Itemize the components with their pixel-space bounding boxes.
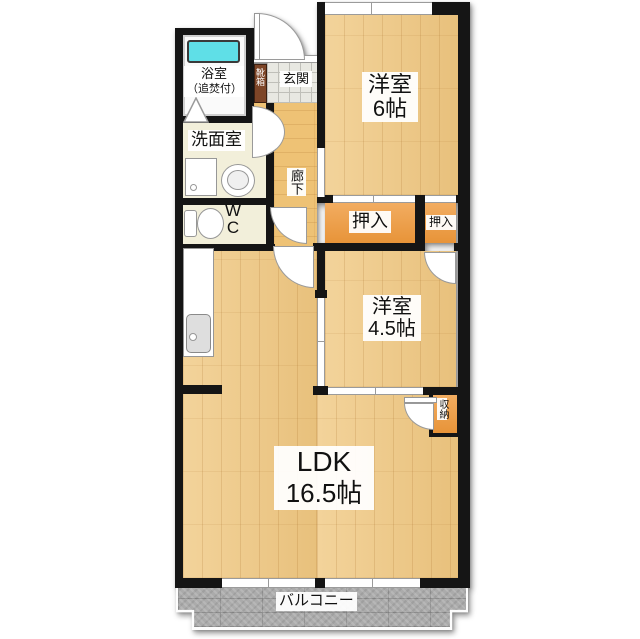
wall xyxy=(454,243,462,251)
sliding-partition-track xyxy=(375,387,376,395)
balcony-label: バルコニー xyxy=(276,592,357,611)
western-room-45-label: 洋室 4.5帖 xyxy=(363,295,421,341)
western-room-6-size: 6帖 xyxy=(373,96,407,121)
wall xyxy=(313,243,425,251)
ldk-name: LDK xyxy=(297,446,351,477)
western-room-6-name: 洋室 xyxy=(368,72,412,97)
corridor-label: 廊下 xyxy=(287,168,306,196)
wall xyxy=(266,148,274,205)
entrance-door-swing-arc xyxy=(257,13,305,60)
wall xyxy=(315,290,327,298)
sliding-door xyxy=(333,195,415,203)
sliding-door xyxy=(317,148,325,197)
sliding-door-track xyxy=(373,195,374,203)
wall xyxy=(315,578,325,588)
washroom-label: 洗面室 xyxy=(188,130,245,151)
wall xyxy=(313,386,328,395)
wall xyxy=(175,28,183,588)
window-mullion xyxy=(372,578,373,588)
bath-folding-door xyxy=(183,97,209,123)
washing-machine-drain xyxy=(190,184,197,191)
floor-plan-page: 浴室 （追焚付） 洗面室 WC 玄関 靴箱 廊下 洋室 6帖 押入 押入 洋室 … xyxy=(0,0,640,639)
window-mullion xyxy=(371,2,372,15)
washing-machine-pan xyxy=(185,158,217,196)
western-room-6-label: 洋室 6帖 xyxy=(362,72,418,122)
kitchen-faucet xyxy=(189,333,197,341)
wall xyxy=(317,251,325,290)
window-mullion xyxy=(268,578,269,588)
closet-left-label: 押入 xyxy=(349,211,391,233)
wall xyxy=(175,28,254,35)
wall xyxy=(420,578,465,588)
storage-label: 収納 xyxy=(437,398,447,420)
bathtub xyxy=(187,40,240,63)
bathroom-name: 浴室 xyxy=(201,66,227,81)
western-room-45-size: 4.5帖 xyxy=(368,318,416,340)
closet-right-label: 押入 xyxy=(426,215,456,230)
bathroom-note: （追焚付） xyxy=(187,83,242,95)
bathroom-label: 浴室 （追焚付） xyxy=(184,66,244,97)
sliding-partition-track xyxy=(317,341,325,342)
floor-plan: 浴室 （追焚付） 洗面室 WC 玄関 靴箱 廊下 洋室 6帖 押入 押入 洋室 … xyxy=(0,0,640,639)
wall xyxy=(175,385,222,394)
sliding-door xyxy=(425,195,456,203)
shoe-box-label: 靴箱 xyxy=(255,68,264,86)
ldk-size: 16.5帖 xyxy=(286,478,363,508)
wall xyxy=(317,2,325,148)
wall xyxy=(415,195,425,243)
toilet-tank xyxy=(184,210,197,237)
entrance-door-leaf xyxy=(254,13,260,60)
ldk-label: LDK 16.5帖 xyxy=(274,446,374,510)
window xyxy=(325,2,432,15)
western-room-45-name: 洋室 xyxy=(372,296,412,318)
wc-label: WC xyxy=(224,202,242,236)
entrance-label: 玄関 xyxy=(280,71,312,87)
washroom-sink-bowl xyxy=(227,170,249,190)
sliding-partition xyxy=(317,298,325,386)
toilet-bowl xyxy=(197,208,224,239)
wall xyxy=(175,578,222,588)
wall xyxy=(458,2,470,588)
wall xyxy=(456,195,466,203)
